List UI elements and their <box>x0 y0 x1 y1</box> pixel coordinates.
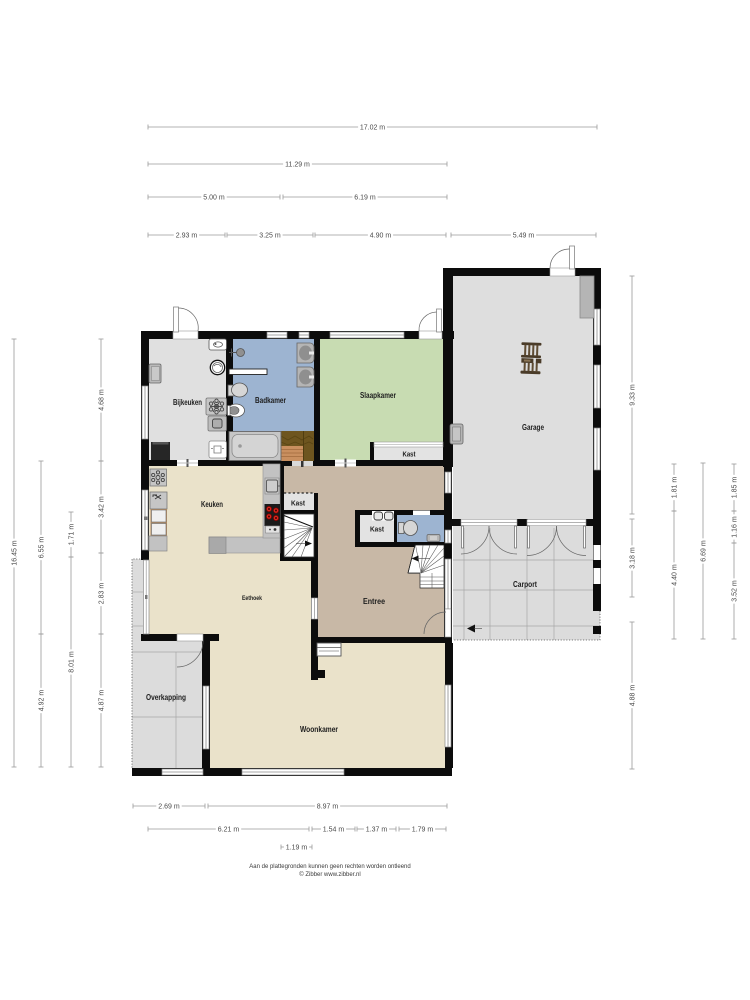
svg-text:4.90 m: 4.90 m <box>370 232 392 239</box>
svg-text:1.19 m: 1.19 m <box>286 844 308 851</box>
svg-text:4.68 m: 4.68 m <box>98 389 105 411</box>
svg-text:Keuken: Keuken <box>201 500 223 509</box>
svg-text:1.37 m: 1.37 m <box>366 826 388 833</box>
svg-text:9.33 m: 9.33 m <box>629 384 636 406</box>
svg-text:6.19 m: 6.19 m <box>354 194 376 201</box>
svg-text:Kast: Kast <box>403 450 416 459</box>
svg-text:Garage: Garage <box>522 423 545 432</box>
svg-text:1.16 m: 1.16 m <box>731 516 738 538</box>
svg-text:17.02 m: 17.02 m <box>360 124 385 131</box>
svg-text:4.92 m: 4.92 m <box>38 690 45 712</box>
svg-text:2.69 m: 2.69 m <box>158 803 180 810</box>
svg-text:5.49 m: 5.49 m <box>513 232 535 239</box>
svg-text:8.97 m: 8.97 m <box>317 803 339 810</box>
svg-text:2.93 m: 2.93 m <box>176 232 198 239</box>
svg-text:Entree: Entree <box>363 597 385 606</box>
svg-text:Badkamer: Badkamer <box>255 396 287 405</box>
svg-text:8.01 m: 8.01 m <box>68 651 75 673</box>
svg-text:16.45 m: 16.45 m <box>11 540 18 565</box>
svg-text:1.71 m: 1.71 m <box>68 524 75 546</box>
svg-text:Slaapkamer: Slaapkamer <box>360 391 397 400</box>
svg-text:Kast: Kast <box>291 499 305 508</box>
svg-text:Carport: Carport <box>513 580 537 589</box>
svg-text:Bijkeuken: Bijkeuken <box>173 398 202 407</box>
svg-text:3.42 m: 3.42 m <box>98 496 105 518</box>
svg-text:1.54 m: 1.54 m <box>323 826 345 833</box>
svg-text:6.69 m: 6.69 m <box>700 540 707 562</box>
svg-text:1.85 m: 1.85 m <box>731 477 738 499</box>
svg-text:© Zibber www.zibber.nl: © Zibber www.zibber.nl <box>299 871 360 878</box>
svg-text:3.25 m: 3.25 m <box>259 232 281 239</box>
svg-text:4.40 m: 4.40 m <box>671 564 678 586</box>
svg-text:6.55 m: 6.55 m <box>38 537 45 559</box>
svg-text:4.88 m: 4.88 m <box>629 685 636 707</box>
svg-text:3.52 m: 3.52 m <box>731 580 738 602</box>
svg-text:3.18 m: 3.18 m <box>629 547 636 569</box>
svg-text:Aan de plattegronden kunnen ge: Aan de plattegronden kunnen geen rechten… <box>249 864 410 870</box>
svg-text:Overkapping: Overkapping <box>146 693 186 702</box>
svg-text:6.21 m: 6.21 m <box>218 826 240 833</box>
svg-text:2.83 m: 2.83 m <box>98 583 105 605</box>
svg-text:1.79 m: 1.79 m <box>412 826 434 833</box>
svg-text:4.87 m: 4.87 m <box>98 690 105 712</box>
svg-text:Kast: Kast <box>370 525 384 534</box>
svg-text:1.81 m: 1.81 m <box>671 477 678 499</box>
svg-text:5.00 m: 5.00 m <box>203 194 225 201</box>
svg-text:Eethoek: Eethoek <box>242 595 262 602</box>
svg-text:Woonkamer: Woonkamer <box>300 725 339 734</box>
svg-text:11.29 m: 11.29 m <box>285 161 310 168</box>
